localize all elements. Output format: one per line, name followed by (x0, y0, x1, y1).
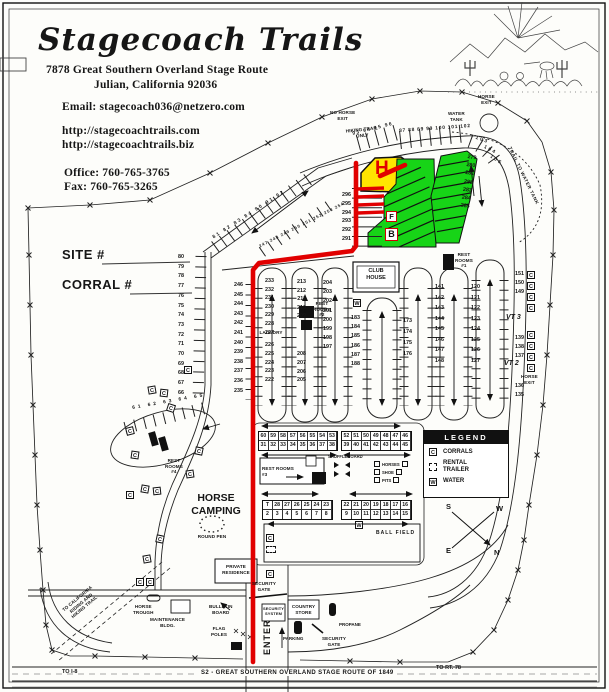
site-stack-208-205: 208 207 206 205 (291, 350, 306, 385)
horse-exit-top-label: HORSE EXIT (478, 94, 495, 105)
site-cell: 49 (371, 432, 381, 441)
site-cell: 12 (371, 510, 381, 519)
corral-icon: C (266, 534, 274, 542)
grid-row: 9101112131415 (342, 510, 411, 519)
site-cell: 59 (269, 432, 279, 441)
corral-icon: C (527, 364, 535, 372)
grid-row: T282726252423 (263, 501, 332, 510)
horseshoe-row-2: SHOE (374, 469, 402, 475)
propane-label: PROPANE (339, 622, 361, 627)
zone-h-marker: H (375, 158, 389, 180)
legend-rental-label: RENTAL TRAILER (443, 460, 469, 474)
corral-icon: C (527, 353, 535, 361)
site-stack-226-222: 226 225 224 223 222 (259, 341, 274, 385)
legend-row-rental: RENTAL TRAILER (429, 460, 508, 474)
site-cell: 23 (322, 501, 332, 510)
maintenance-bldg-label: MAINTENANCE BLDG. (150, 617, 185, 628)
corral-icon: C (153, 487, 162, 496)
site-stack-120-127: 120 121 122 123 124 125 126 127 (465, 282, 480, 366)
site-stack-right-a: 151 150 149 (509, 270, 524, 297)
site-cell: 55 (308, 432, 318, 441)
to-rt78-label: TO RT. 78 (436, 665, 461, 671)
site-cell: 4 (283, 510, 293, 519)
flag-poles-label: FLAG POLES (211, 626, 227, 637)
rest-rooms-3-label: REST ROOMS #3 (262, 466, 294, 477)
site-cell: 10 (352, 510, 362, 519)
corral-icon: C (160, 389, 169, 398)
rest-rooms-1-label: REST ROOMS #1 (455, 252, 473, 269)
water-point-icon: W (355, 521, 363, 529)
address-line-1: 7878 Great Southern Overland Stage Route (46, 64, 268, 76)
ball-field-label: BALL FIELD (376, 530, 415, 536)
site-cell: 36 (308, 441, 318, 450)
horse-camp-loop (104, 398, 222, 478)
vt3-label: VT 3 (506, 314, 521, 321)
site-cell: 50 (362, 432, 372, 441)
corral-icon: C (527, 342, 535, 350)
site-stack-striped: 296 295 294 293 292 291 (336, 191, 351, 244)
buildings (102, 254, 454, 650)
site-cell: 19 (371, 501, 381, 510)
address-line-2: Julian, California 92036 (94, 79, 217, 91)
site-cell: 42 (371, 441, 381, 450)
horseshoe-word-2: SHOE (382, 470, 394, 475)
pit-box-icon (393, 477, 399, 483)
site-cell: 33 (279, 441, 289, 450)
site-stack-213-209: 213 212 211 210 209 (291, 278, 306, 321)
no-horse-exit-label: NO HORSE EXIT (330, 110, 355, 121)
site-cell: 16 (401, 501, 411, 510)
site-cell: 53 (328, 432, 338, 441)
site-cell: 17 (391, 501, 401, 510)
rental-trailer-icon (429, 463, 437, 471)
corral-icon: C (146, 578, 154, 586)
pit-box-icon (396, 469, 402, 475)
site-cell: 56 (298, 432, 308, 441)
horseshoe-word-3: PITS (382, 478, 391, 483)
site-stack-right-b: 139 138 137 (509, 334, 524, 361)
site-stack-80-66: 80 79 78 77 76 75 74 73 72 71 70 69 68 6… (170, 253, 184, 399)
site-cell: 37 (318, 441, 328, 450)
water-icon: W (429, 478, 437, 486)
site-cell: 34 (288, 441, 298, 450)
corral-icon: C (266, 570, 274, 578)
site-cell: 45 (401, 441, 411, 450)
corral-icon: C (527, 304, 535, 312)
corral-icon: C (142, 554, 151, 563)
office-phone: Office: 760-765-3765 (64, 167, 170, 179)
site-stack-183-188: 183 184 185 186 187 188 (345, 314, 360, 369)
site-cell: 14 (391, 510, 401, 519)
site-cell: 3 (273, 510, 283, 519)
site-cell: 15 (401, 510, 411, 519)
highway-label: S2 - GREAT SOUTHERN OVERLAND STAGE ROUTE… (198, 670, 397, 676)
zone-f-marker: F (386, 211, 397, 222)
legend-title: LEGEND (424, 431, 508, 444)
site-cell: 31 (259, 441, 269, 450)
site-cell: 48 (381, 432, 391, 441)
site-cell: 25 (302, 501, 312, 510)
club-house-label: CLUB HOUSE (354, 268, 398, 281)
grid-row: 3132333435363738 (259, 441, 337, 450)
corral-icon: C (527, 282, 535, 290)
corral-icon: C (136, 578, 144, 586)
email-line: Email: stagecoach036@netzero.com (62, 101, 245, 113)
site-cell: 40 (352, 441, 362, 450)
legend-box: LEGEND C CORRALS RENTAL TRAILER W WATER (423, 430, 509, 498)
corral-icon: C (130, 450, 139, 459)
horseshoe-word-1: HORSES (382, 462, 400, 467)
compass-s: S (446, 502, 451, 511)
compass-n: N (494, 548, 499, 557)
water-tank-label: WATER TANK (448, 111, 465, 122)
site-cell: 9 (342, 510, 352, 519)
site-cell: 44 (391, 441, 401, 450)
site-cell: 20 (362, 501, 372, 510)
site-cell: 35 (298, 441, 308, 450)
pit-box-icon (374, 477, 380, 483)
grid-row: 52515049484746 (342, 432, 411, 441)
horseshoe-row-1: HORSES (374, 461, 408, 467)
horse-trough-label: HORSE TROUGH (133, 604, 154, 615)
site-number-label: SITE # (62, 247, 105, 262)
site-cell: 7 (312, 510, 322, 519)
water-point-icon: W (353, 299, 361, 307)
pit-box-icon (374, 461, 380, 467)
rest-rooms-4-label: REST ROOMS #4 (165, 458, 183, 475)
shuffleboard-label: SHUFFLEBOARD (328, 454, 363, 459)
horse-exit-right-label: HORSE EXIT (521, 374, 538, 385)
country-store-label: COUNTRY STORE (289, 604, 318, 615)
url-line-2: http://stagecoachtrails.biz (62, 139, 194, 151)
site-cell: 60 (259, 432, 269, 441)
site-stack-173-176: 173 174 175 176 (397, 316, 412, 360)
site-cell: 41 (362, 441, 372, 450)
fax-phone: Fax: 760-765-3265 (64, 181, 158, 193)
site-cell: 26 (292, 501, 302, 510)
corral-icon: C (140, 484, 149, 493)
site-cell: 38 (328, 441, 338, 450)
legend-row-corrals: C CORRALS (429, 448, 508, 456)
site-grid-2: 52515049484746 39404142434445 (341, 431, 412, 451)
round-pen-icon (200, 516, 224, 532)
site-grid-3: T282726252423 2345678 (262, 500, 333, 520)
site-cell: 5 (292, 510, 302, 519)
private-residence-label: PRIVATE RESIDENCE (216, 564, 256, 575)
site-cell: 57 (288, 432, 298, 441)
corral-number-label: CORRAL # (62, 277, 132, 292)
page-title: Stagecoach Trails (38, 22, 363, 58)
grid-row: 6059585756555453 (259, 432, 337, 441)
corral-icon: C (527, 331, 535, 339)
site-cell: 24 (312, 501, 322, 510)
corral-icon: C (126, 491, 134, 499)
parking-label: PARKING (283, 636, 303, 641)
compass-e: E (446, 546, 451, 555)
laundry-label: LAUNDRY (256, 330, 286, 336)
site-cell: 8 (322, 510, 332, 519)
rest-rooms-2-label: REST ROOMS #2 (313, 301, 331, 318)
site-grid-1: 6059585756555453 3132333435363738 (258, 431, 338, 451)
enter-label: ENTER (262, 619, 272, 655)
corral-icon: C (527, 271, 535, 279)
site-cell: 11 (362, 510, 372, 519)
site-cell: 21 (352, 501, 362, 510)
legend-water-label: WATER (443, 478, 464, 485)
site-stack-141-148: 141 142 143 144 145 146 147 148 (429, 282, 444, 366)
corral-icon: C (194, 446, 203, 455)
compass-w: W (496, 504, 503, 513)
site-cell: 43 (381, 441, 391, 450)
corral-icon: C (155, 534, 164, 543)
site-cell: 32 (269, 441, 279, 450)
site-cell: 46 (401, 432, 411, 441)
site-cell: 39 (342, 441, 352, 450)
site-cell: 54 (318, 432, 328, 441)
site-cell: 47 (391, 432, 401, 441)
corral-icon: C (147, 385, 156, 394)
site-cell: T (263, 501, 273, 510)
grid-row: 22212019181716 (342, 501, 411, 510)
site-grid-4: 22212019181716 9101112131415 (341, 500, 412, 520)
security-gate-label-1: SECURITY GATE (252, 581, 276, 592)
legend-corrals-label: CORRALS (443, 449, 473, 456)
site-cell: 51 (352, 432, 362, 441)
site-cell: 13 (381, 510, 391, 519)
grid-row: 2345678 (263, 510, 332, 519)
bulletin-board-label: BULLETIN BOARD (209, 604, 233, 615)
pit-box-icon (374, 469, 380, 475)
legend-row-water: W WATER (429, 478, 508, 486)
to-i8-label: TO I-8 (62, 669, 78, 675)
grid-row: 39404142434445 (342, 441, 411, 450)
zone-b-marker: B (385, 228, 398, 241)
corral-icon: C (429, 448, 437, 456)
site-cell: 22 (342, 501, 352, 510)
site-cell: 28 (273, 501, 283, 510)
rental-trailer-icon (266, 546, 276, 553)
site-cell: 27 (283, 501, 293, 510)
corral-icon: C (185, 469, 194, 478)
site-cell: 52 (342, 432, 352, 441)
water-tank-icon (480, 114, 498, 132)
url-line-1: http://stagecoachtrails.com (62, 125, 200, 137)
security-gate-label-2: SECURITY GATE (322, 636, 346, 647)
site-cell: 18 (381, 501, 391, 510)
site-stack-233-227: 233 232 231 230 229 228 227 (259, 277, 274, 337)
corral-icon: C (527, 293, 535, 301)
horseshoe-row-3: PITS (374, 477, 399, 483)
compass-icon (452, 512, 494, 548)
corral-icon: C (184, 366, 192, 374)
site-cell: 58 (279, 432, 289, 441)
round-pen-label: ROUND PEN (192, 534, 232, 540)
site-cell: 6 (302, 510, 312, 519)
campground-map: Stagecoach Trails 7878 Great Southern Ov… (0, 0, 609, 692)
vt2-label: VT 2 (504, 360, 519, 367)
site-cell: 2 (263, 510, 273, 519)
horse-camping-label: HORSE CAMPING (184, 492, 248, 518)
pit-box-icon (402, 461, 408, 467)
security-system-label: SECURITY SYSTEM (263, 607, 284, 617)
site-stack-246-235: 246 245 244 243 242 241 240 239 238 237 … (228, 281, 243, 396)
